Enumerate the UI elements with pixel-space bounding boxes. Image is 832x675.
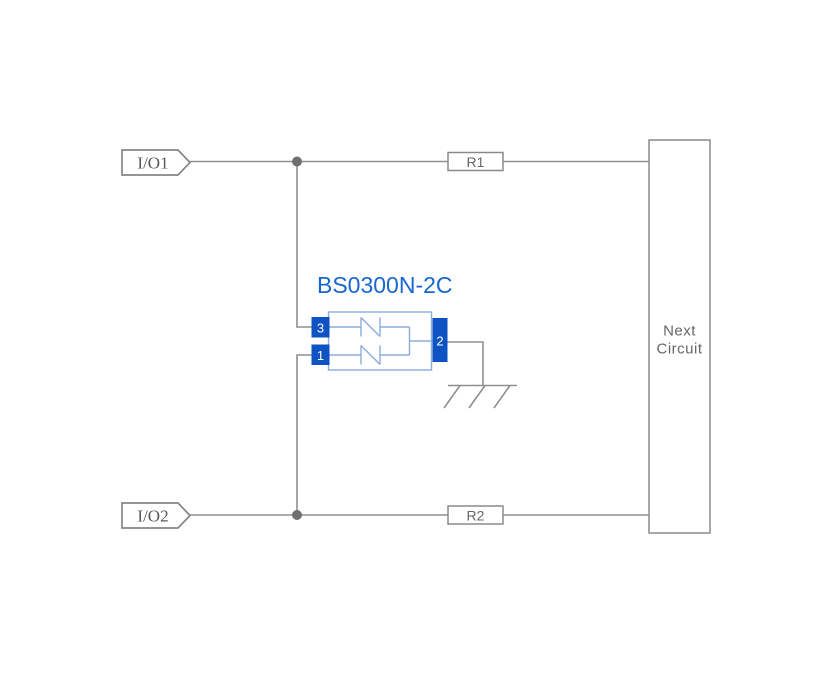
ground-hatch-3	[494, 386, 510, 409]
circuit-schematic: I/O1 I/O2 R1 R2 Next Circuit BS0300N-2C	[0, 0, 832, 675]
io1-label: I/O1	[137, 154, 168, 173]
esd-component: BS0300N-2C	[312, 272, 453, 370]
pin2-number: 2	[436, 334, 443, 349]
next-circuit-label-line2: Circuit	[656, 341, 702, 358]
pin1-number: 1	[317, 348, 324, 363]
pin3-number: 3	[317, 321, 324, 336]
pin-3: 3	[312, 317, 330, 338]
next-circuit-block: Next Circuit	[649, 140, 710, 533]
wire-pin2-to-ground	[448, 342, 484, 386]
pin-2: 2	[433, 318, 448, 362]
schematic-canvas: I/O1 I/O2 R1 R2 Next Circuit BS0300N-2C	[0, 0, 832, 675]
component-title: BS0300N-2C	[317, 272, 453, 298]
wire-junction1-to-pin3	[297, 162, 316, 328]
wire-pin1-to-junction2	[297, 355, 316, 515]
ground-hatch-2	[469, 386, 485, 409]
junction-dot-top	[292, 157, 302, 167]
port-io2: I/O2	[122, 503, 190, 528]
io2-label: I/O2	[137, 507, 168, 526]
resistor-r2: R2	[448, 506, 503, 524]
next-circuit-label-line1: Next	[663, 323, 696, 340]
resistor-r1: R1	[448, 153, 503, 171]
port-io1: I/O1	[122, 150, 190, 175]
r2-label: R2	[467, 508, 485, 524]
chassis-ground-icon	[444, 386, 517, 409]
ground-hatch-1	[444, 386, 460, 409]
r1-label: R1	[467, 154, 485, 170]
pin-1: 1	[312, 345, 330, 366]
junction-dot-bottom	[292, 510, 302, 520]
